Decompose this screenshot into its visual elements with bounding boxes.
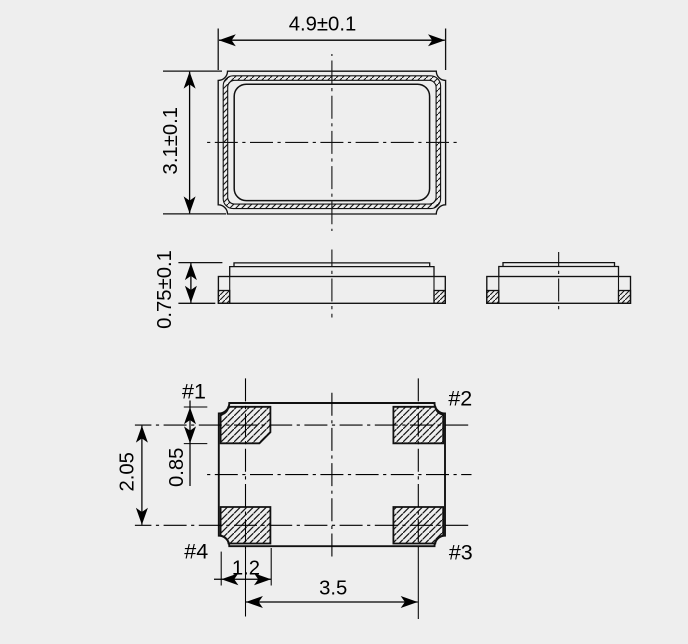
- svg-text:3.5: 3.5: [319, 578, 347, 600]
- svg-text:0.75±0.1: 0.75±0.1: [154, 250, 176, 329]
- svg-text:1.2: 1.2: [232, 558, 260, 580]
- svg-text:#1: #1: [182, 379, 206, 403]
- svg-text:3.1±0.1: 3.1±0.1: [160, 107, 182, 175]
- svg-text:2.05: 2.05: [117, 452, 139, 491]
- svg-text:0.85: 0.85: [166, 448, 188, 487]
- svg-text:#2: #2: [448, 386, 472, 410]
- svg-text:#4: #4: [184, 539, 208, 563]
- svg-text:#3: #3: [449, 541, 473, 565]
- svg-text:4.9±0.1: 4.9±0.1: [289, 14, 357, 36]
